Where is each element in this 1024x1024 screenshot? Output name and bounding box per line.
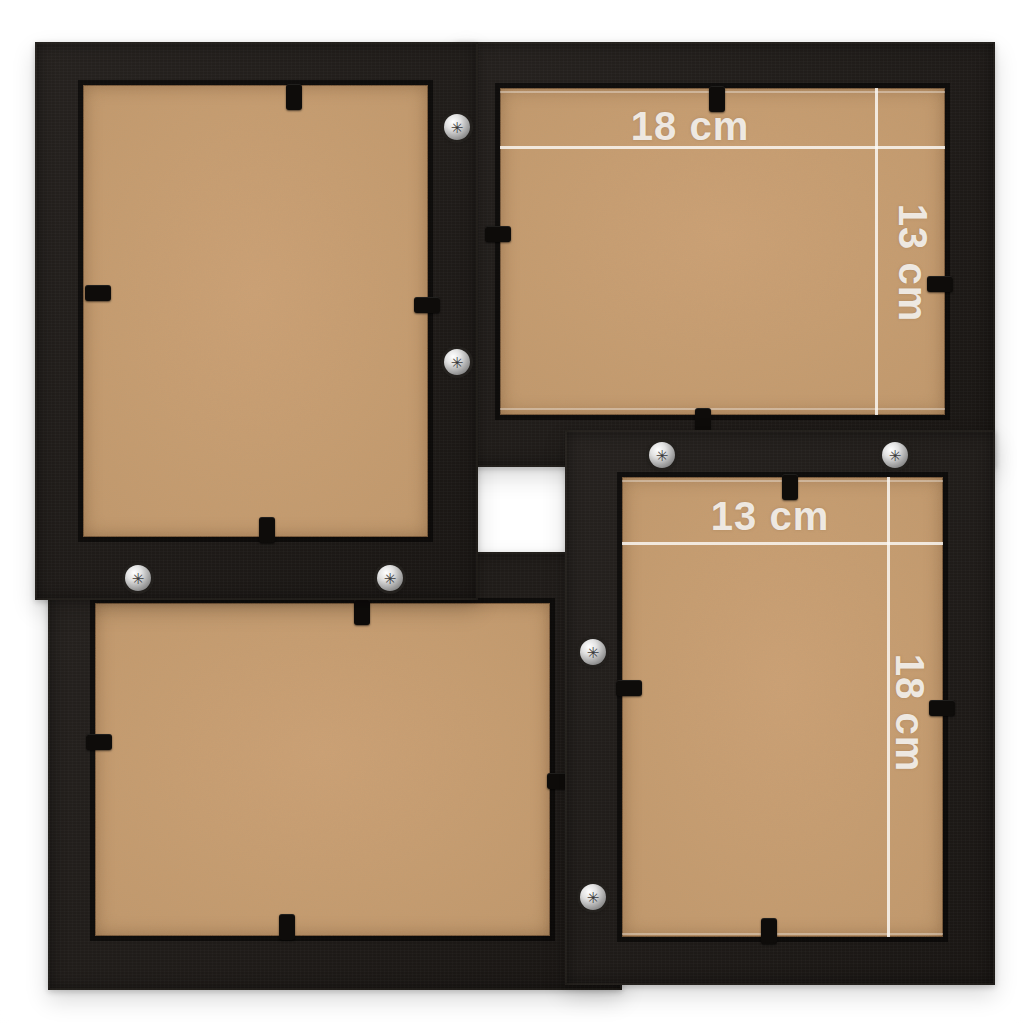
height-dimension-label: 18 cm: [887, 654, 932, 772]
height-dimension-label: 13 cm: [890, 204, 935, 322]
mdf-texture: [83, 85, 428, 537]
glass-edge-highlight: [622, 933, 943, 935]
mdf-texture: [95, 603, 550, 936]
screw-icon: ✳: [444, 114, 470, 140]
top-right-frame: 18 cm 13 cm: [455, 42, 995, 467]
screw-icon: ✳: [580, 639, 606, 665]
retainer-clip: [616, 680, 642, 696]
retainer-clip: [286, 84, 302, 110]
retainer-clip: [279, 914, 295, 940]
width-dimension-label: 18 cm: [631, 104, 749, 149]
retainer-clip: [85, 285, 111, 301]
retainer-clip: [761, 918, 777, 944]
screw-icon: ✳: [444, 349, 470, 375]
bottom-left-frame: [48, 552, 622, 990]
height-dimension-line: [875, 88, 878, 415]
bottom-right-frame: 13 cm 18 cm: [565, 430, 995, 985]
retainer-clip: [929, 700, 955, 716]
glass-edge-highlight: [500, 408, 945, 410]
screw-icon: ✳: [125, 565, 151, 591]
screw-icon: ✳: [580, 884, 606, 910]
retainer-clip: [414, 297, 440, 313]
width-dimension-label: 13 cm: [711, 494, 829, 539]
retainer-clip: [485, 226, 511, 242]
retainer-clip: [354, 599, 370, 625]
retainer-clip: [86, 734, 112, 750]
width-dimension-line: [622, 542, 943, 545]
photo-backing: [83, 85, 428, 537]
collage-photo-frame-product-photo: 18 cm 13 cm 13 cm 18 cm ✳ ✳ ✳ ✳ ✳ ✳: [0, 0, 1024, 1024]
photo-backing: [95, 603, 550, 936]
retainer-clip: [259, 517, 275, 543]
top-left-frame: [35, 42, 478, 600]
screw-icon: ✳: [882, 442, 908, 468]
screw-icon: ✳: [649, 442, 675, 468]
screw-icon: ✳: [377, 565, 403, 591]
